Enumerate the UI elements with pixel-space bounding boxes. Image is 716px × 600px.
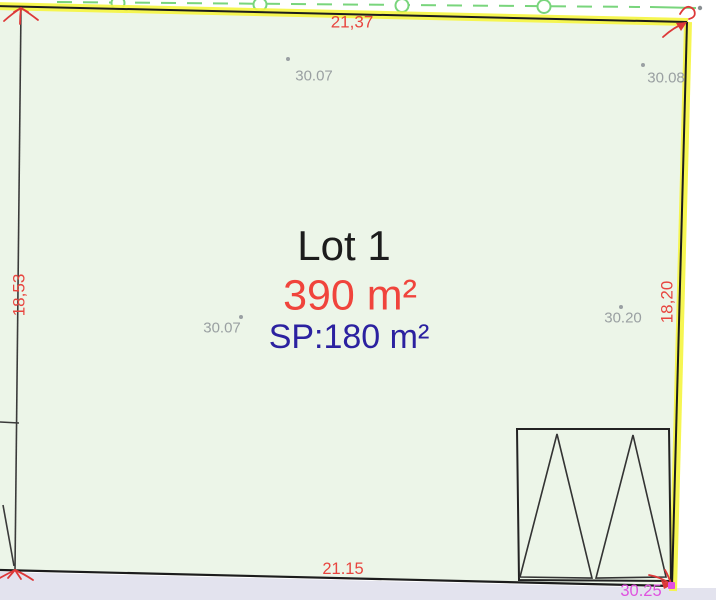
dimension-left-label: 18,53 <box>11 274 28 317</box>
spot-elevation-label: 30.08 <box>647 71 685 86</box>
spot-dot <box>286 57 290 61</box>
dimension-bottom-label: 21.15 <box>322 561 363 578</box>
dimension-top-label: 21,37 <box>331 14 374 31</box>
utility-node-icon <box>538 0 551 13</box>
spot-elevation-label: 30.07 <box>295 69 333 84</box>
utility-end-dot <box>698 6 702 10</box>
spot-dot <box>239 315 243 319</box>
dimension-right-label: 18,20 <box>659 281 676 324</box>
spot-elevation-label: 30.20 <box>604 311 642 326</box>
spot-dot <box>641 63 645 67</box>
lot-title: Lot 1 <box>297 225 390 267</box>
utility-node-icon <box>396 0 409 12</box>
plan-canvas[interactable]: 21,37 18,53 18,20 21.15 30.25 30.07 30.0… <box>0 0 716 600</box>
adjacent-line-horizontal <box>0 422 19 423</box>
dimension-corner-label: 30.25 <box>620 583 661 600</box>
spot-dot <box>619 305 623 309</box>
spot-elevation-label: 30.07 <box>203 321 241 336</box>
corner-point-marker <box>668 582 675 589</box>
lot-surface-plancher-label: SP:180 m² <box>269 320 430 354</box>
lot-area-label: 390 m² <box>283 275 417 318</box>
